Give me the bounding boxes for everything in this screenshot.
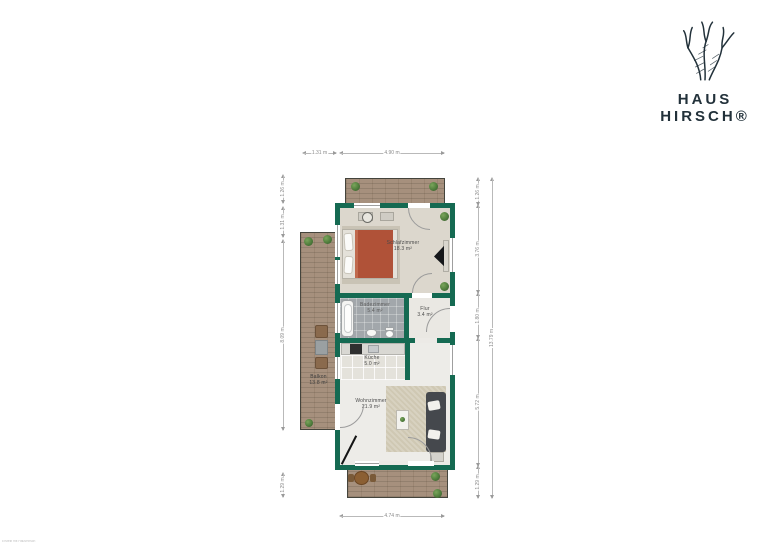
- dim-label: 3.76 m: [475, 240, 481, 257]
- floor-plan-page: HAUS HIRSCH® Balkon 13.8 m² Schlafzimmer…: [0, 0, 768, 560]
- room-area: 5.0 m²: [352, 361, 392, 367]
- room-label-badezimmer: Badezimmer 5.4 m²: [352, 302, 398, 315]
- dim-left-4: 1.29 m: [279, 473, 287, 497]
- dim-label: 1.29 m: [280, 476, 286, 493]
- deer-antler-icon: [673, 16, 737, 86]
- dim-label: 1.26 m: [475, 183, 481, 200]
- plant: [305, 419, 313, 427]
- window: [450, 238, 455, 272]
- room-area: 18.3 m²: [375, 246, 431, 252]
- dim-right-2: 3.76 m: [474, 205, 482, 293]
- brand-name-line1: HAUS: [650, 91, 760, 108]
- toilet-bowl: [385, 330, 394, 338]
- window: [354, 203, 380, 208]
- plant: [304, 237, 313, 246]
- balcony-door-opening: [408, 461, 434, 466]
- dim-left-3: 8.09 m: [279, 240, 287, 430]
- dim-bottom-1: 4.74 m: [340, 512, 444, 520]
- dim-label: 5.72 m: [475, 393, 481, 410]
- plant: [440, 212, 449, 221]
- door-swing: [340, 404, 364, 428]
- window: [335, 303, 340, 333]
- plant: [429, 182, 438, 191]
- patio-table: [354, 471, 369, 485]
- window: [335, 260, 340, 284]
- table-plant: [400, 417, 405, 422]
- room-label-schlafzimmer: Schlafzimmer 18.3 m²: [375, 240, 431, 253]
- deck-chair: [315, 357, 328, 369]
- bedroom-door-opening: [412, 293, 432, 298]
- dim-right-5: 1.29 m: [474, 466, 482, 498]
- room-label-balkon: Balkon 13.8 m²: [300, 374, 337, 387]
- dim-label: 1.26 m: [280, 180, 286, 197]
- dim-right-1: 1.26 m: [474, 178, 482, 205]
- dim-top-2: 4.90 m: [340, 149, 444, 157]
- door-swing: [426, 308, 450, 332]
- watermark: Erstellt mit HausHirsch: [2, 540, 35, 543]
- kitchen-sink: [368, 345, 379, 353]
- dim-left-1: 1.26 m: [279, 175, 287, 203]
- dim-label: 8.09 m: [280, 326, 286, 343]
- dim-label: 4.74 m: [383, 513, 400, 519]
- cabinet: [380, 212, 394, 221]
- entrance-door-opening: [450, 306, 455, 332]
- patio-chair: [370, 474, 376, 482]
- dim-label: 4.90 m: [383, 150, 400, 156]
- dim-label: 1.31 m: [311, 150, 328, 156]
- brand-logo: HAUS HIRSCH®: [650, 16, 760, 125]
- room-area: 13.8 m²: [300, 380, 337, 386]
- deck-chair: [315, 325, 328, 338]
- door-swing: [408, 208, 430, 230]
- dim-top-1: 1.31 m: [303, 149, 336, 157]
- sink: [366, 329, 377, 337]
- dim-right-3: 1.80 m: [474, 293, 482, 338]
- dim-label: 1.31 m: [280, 213, 286, 230]
- dim-right-4: 5.72 m: [474, 338, 482, 466]
- dim-label: 13.79 m: [489, 328, 495, 348]
- interior-wall: [405, 338, 410, 380]
- room-label-kueche: Küche 5.0 m²: [352, 355, 392, 368]
- window: [335, 225, 340, 257]
- bed-pillow: [343, 233, 353, 252]
- window: [355, 461, 379, 466]
- bathtub-basin: [344, 304, 352, 333]
- plant: [431, 472, 440, 481]
- door-swing: [412, 273, 432, 293]
- bed-pillow: [343, 256, 353, 275]
- room-area: 5.4 m²: [352, 308, 398, 314]
- patio-chair: [348, 474, 354, 482]
- dim-right-total: 13.79 m: [488, 178, 496, 498]
- dim-label: 1.80 m: [475, 307, 481, 324]
- bed-duvet: [355, 230, 393, 278]
- window: [335, 357, 340, 379]
- dim-label: 1.29 m: [475, 473, 481, 490]
- dim-left-2: 1.31 m: [279, 207, 287, 237]
- window: [450, 345, 455, 375]
- stove: [350, 344, 362, 354]
- deck-table: [315, 340, 328, 355]
- plant: [323, 235, 332, 244]
- brand-name-line2: HIRSCH®: [650, 108, 760, 125]
- door-swing: [408, 437, 432, 461]
- plant: [433, 489, 442, 498]
- plant: [351, 182, 360, 191]
- plant: [440, 282, 449, 291]
- ceiling-fan-icon: [362, 212, 373, 223]
